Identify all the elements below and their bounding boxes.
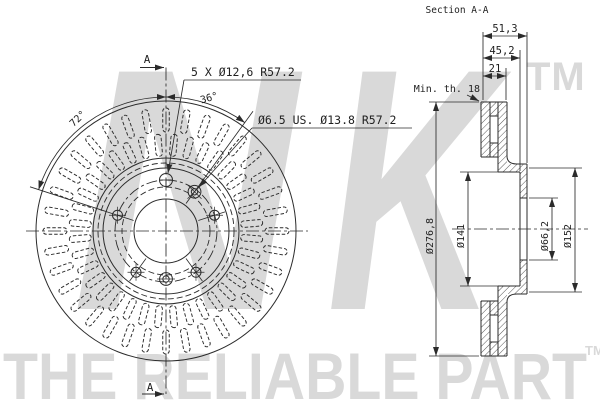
- nk-watermark: N K TM THE RELIABLE PART TM: [3, 0, 600, 400]
- dim-ring-thickness: 21: [489, 63, 502, 75]
- vent-slot: [44, 206, 69, 217]
- watermark-letter-n: N: [72, 0, 306, 383]
- dim-hub-width: 45,2: [489, 45, 514, 57]
- section-marker-label-top: A: [144, 53, 151, 66]
- vent-slot: [49, 186, 74, 200]
- section-title: Section A-A: [426, 5, 489, 16]
- watermark-trademark: TM: [526, 55, 586, 99]
- dim-hat-diameter: Ø141: [455, 224, 467, 248]
- min-thickness-note: Min. th. 18: [414, 84, 480, 95]
- watermark-tagline-trademark: TM: [585, 343, 600, 358]
- dim-outer-diameter: Ø276,8: [424, 218, 436, 254]
- bolt-pattern-label: 5 X Ø12,6 R57.2: [191, 65, 295, 79]
- vent-slot: [49, 262, 74, 276]
- dim-overall-width: 51,3: [492, 23, 517, 35]
- dim-flange-diameter: Ø152: [562, 224, 574, 248]
- dim-bore-diameter: Ø66,2: [539, 221, 551, 251]
- vent-slot: [44, 245, 69, 256]
- technical-drawing-page: N K TM THE RELIABLE PART TM A A: [0, 0, 600, 400]
- pin-hole-label: Ø6.5 US. Ø13.8 R57.2: [258, 113, 396, 127]
- section-marker-label-bottom: A: [147, 381, 154, 394]
- brake-disc-drawing: N K TM THE RELIABLE PART TM A A: [0, 0, 600, 400]
